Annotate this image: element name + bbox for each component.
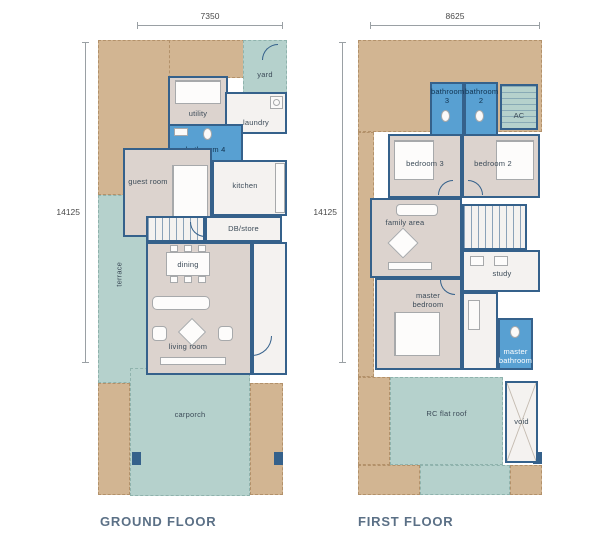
dining-chair-icon xyxy=(170,245,178,252)
toilet-icon-bathroom4 xyxy=(203,128,212,140)
carporch-pillar-left xyxy=(132,452,141,465)
dim-tick xyxy=(282,22,283,29)
sofa-icon xyxy=(152,296,210,310)
dim-tick xyxy=(339,42,346,43)
dining-chair-icon xyxy=(184,245,192,252)
dim-tick xyxy=(370,22,371,29)
toilet-icon-bathroom3 xyxy=(441,110,450,122)
carporch-area: carporch xyxy=(130,368,250,496)
cabinet-icon-family xyxy=(388,262,432,270)
room-label-rc-flat-roof: RC flat roof xyxy=(391,410,502,419)
ground-height-dimension-line xyxy=(85,42,86,363)
stairs-first xyxy=(462,204,527,250)
first-driveway-area xyxy=(420,465,510,495)
room-label-terrace: terrace xyxy=(116,244,125,304)
first-floor-title: FIRST FLOOR xyxy=(358,514,453,529)
ground-height-dimension: 14125 xyxy=(38,207,80,217)
room-label-study: study xyxy=(478,270,526,279)
dim-tick xyxy=(82,42,89,43)
room-label-living-room: living room xyxy=(156,343,220,352)
room-label-bedroom2: bedroom 2 xyxy=(468,160,518,169)
armchair-icon xyxy=(218,326,233,341)
sofa-icon-family xyxy=(396,204,438,216)
desk-icon-study xyxy=(470,256,484,266)
ground-floor-title: GROUND FLOOR xyxy=(100,514,216,529)
dim-tick xyxy=(339,362,346,363)
first-landscape-left-lower xyxy=(358,377,390,465)
dining-chair-icon xyxy=(170,276,178,283)
room-label-dining: dining xyxy=(166,261,210,270)
first-landscape-bottom-right xyxy=(510,465,542,495)
floorplan-sheet: yard terrace carporch utility laundry ba… xyxy=(0,0,600,554)
ground-landscape-bottom-left xyxy=(98,383,130,495)
rc-flat-roof-area: RC flat roof xyxy=(390,377,503,465)
bed-icon-master xyxy=(394,312,440,356)
first-height-dimension: 14125 xyxy=(295,207,337,217)
dining-chair-icon xyxy=(198,276,206,283)
room-label-family-area: family area xyxy=(376,219,434,228)
room-label-bathroom2: bathroom 2 xyxy=(465,88,497,105)
dim-tick xyxy=(539,22,540,29)
bed-icon-utility xyxy=(175,80,221,104)
ground-width-dimension: 7350 xyxy=(137,11,283,21)
sink-icon-bathroom4 xyxy=(174,128,188,136)
room-label-kitchen: kitchen xyxy=(218,182,272,191)
toilet-icon-bathroom2 xyxy=(475,110,484,122)
room-label-void: void xyxy=(505,418,538,427)
wardrobe-icon xyxy=(468,300,480,330)
room-label-bathroom3: bathroom 3 xyxy=(431,88,463,105)
dim-tick xyxy=(82,362,89,363)
desk-icon-study xyxy=(494,256,508,266)
room-label-utility: utility xyxy=(168,110,228,119)
room-label-guest-room: guest room xyxy=(128,178,168,187)
room-label-master-bedroom: master bedroom xyxy=(404,292,452,309)
bed-icon-guest-room xyxy=(172,165,208,220)
dining-chair-icon xyxy=(184,276,192,283)
first-landscape-bottom-left xyxy=(358,465,420,495)
room-label-carporch: carporch xyxy=(131,411,249,420)
washing-machine-drum-icon xyxy=(273,99,280,106)
first-width-dimension: 8625 xyxy=(370,11,540,21)
armchair-icon xyxy=(152,326,167,341)
room-label-master-bathroom: master bathroom xyxy=(498,348,533,365)
room-ac-ledge xyxy=(500,84,538,130)
kitchen-counter xyxy=(275,163,285,213)
first-height-dimension-line xyxy=(342,42,343,363)
dim-tick xyxy=(137,22,138,29)
toilet-icon-master-bathroom xyxy=(510,326,520,338)
ground-width-dimension-line xyxy=(137,25,283,26)
room-label-yard: yard xyxy=(244,71,286,80)
dining-chair-icon xyxy=(198,245,206,252)
room-label-bedroom3: bedroom 3 xyxy=(400,160,450,169)
tv-console-icon xyxy=(160,357,226,365)
carporch-pillar-right xyxy=(274,452,283,465)
room-label-ac: AC xyxy=(500,112,538,121)
room-label-db-store: DB/store xyxy=(205,225,282,234)
first-width-dimension-line xyxy=(370,25,540,26)
ground-landscape-bottom-right xyxy=(250,383,283,495)
